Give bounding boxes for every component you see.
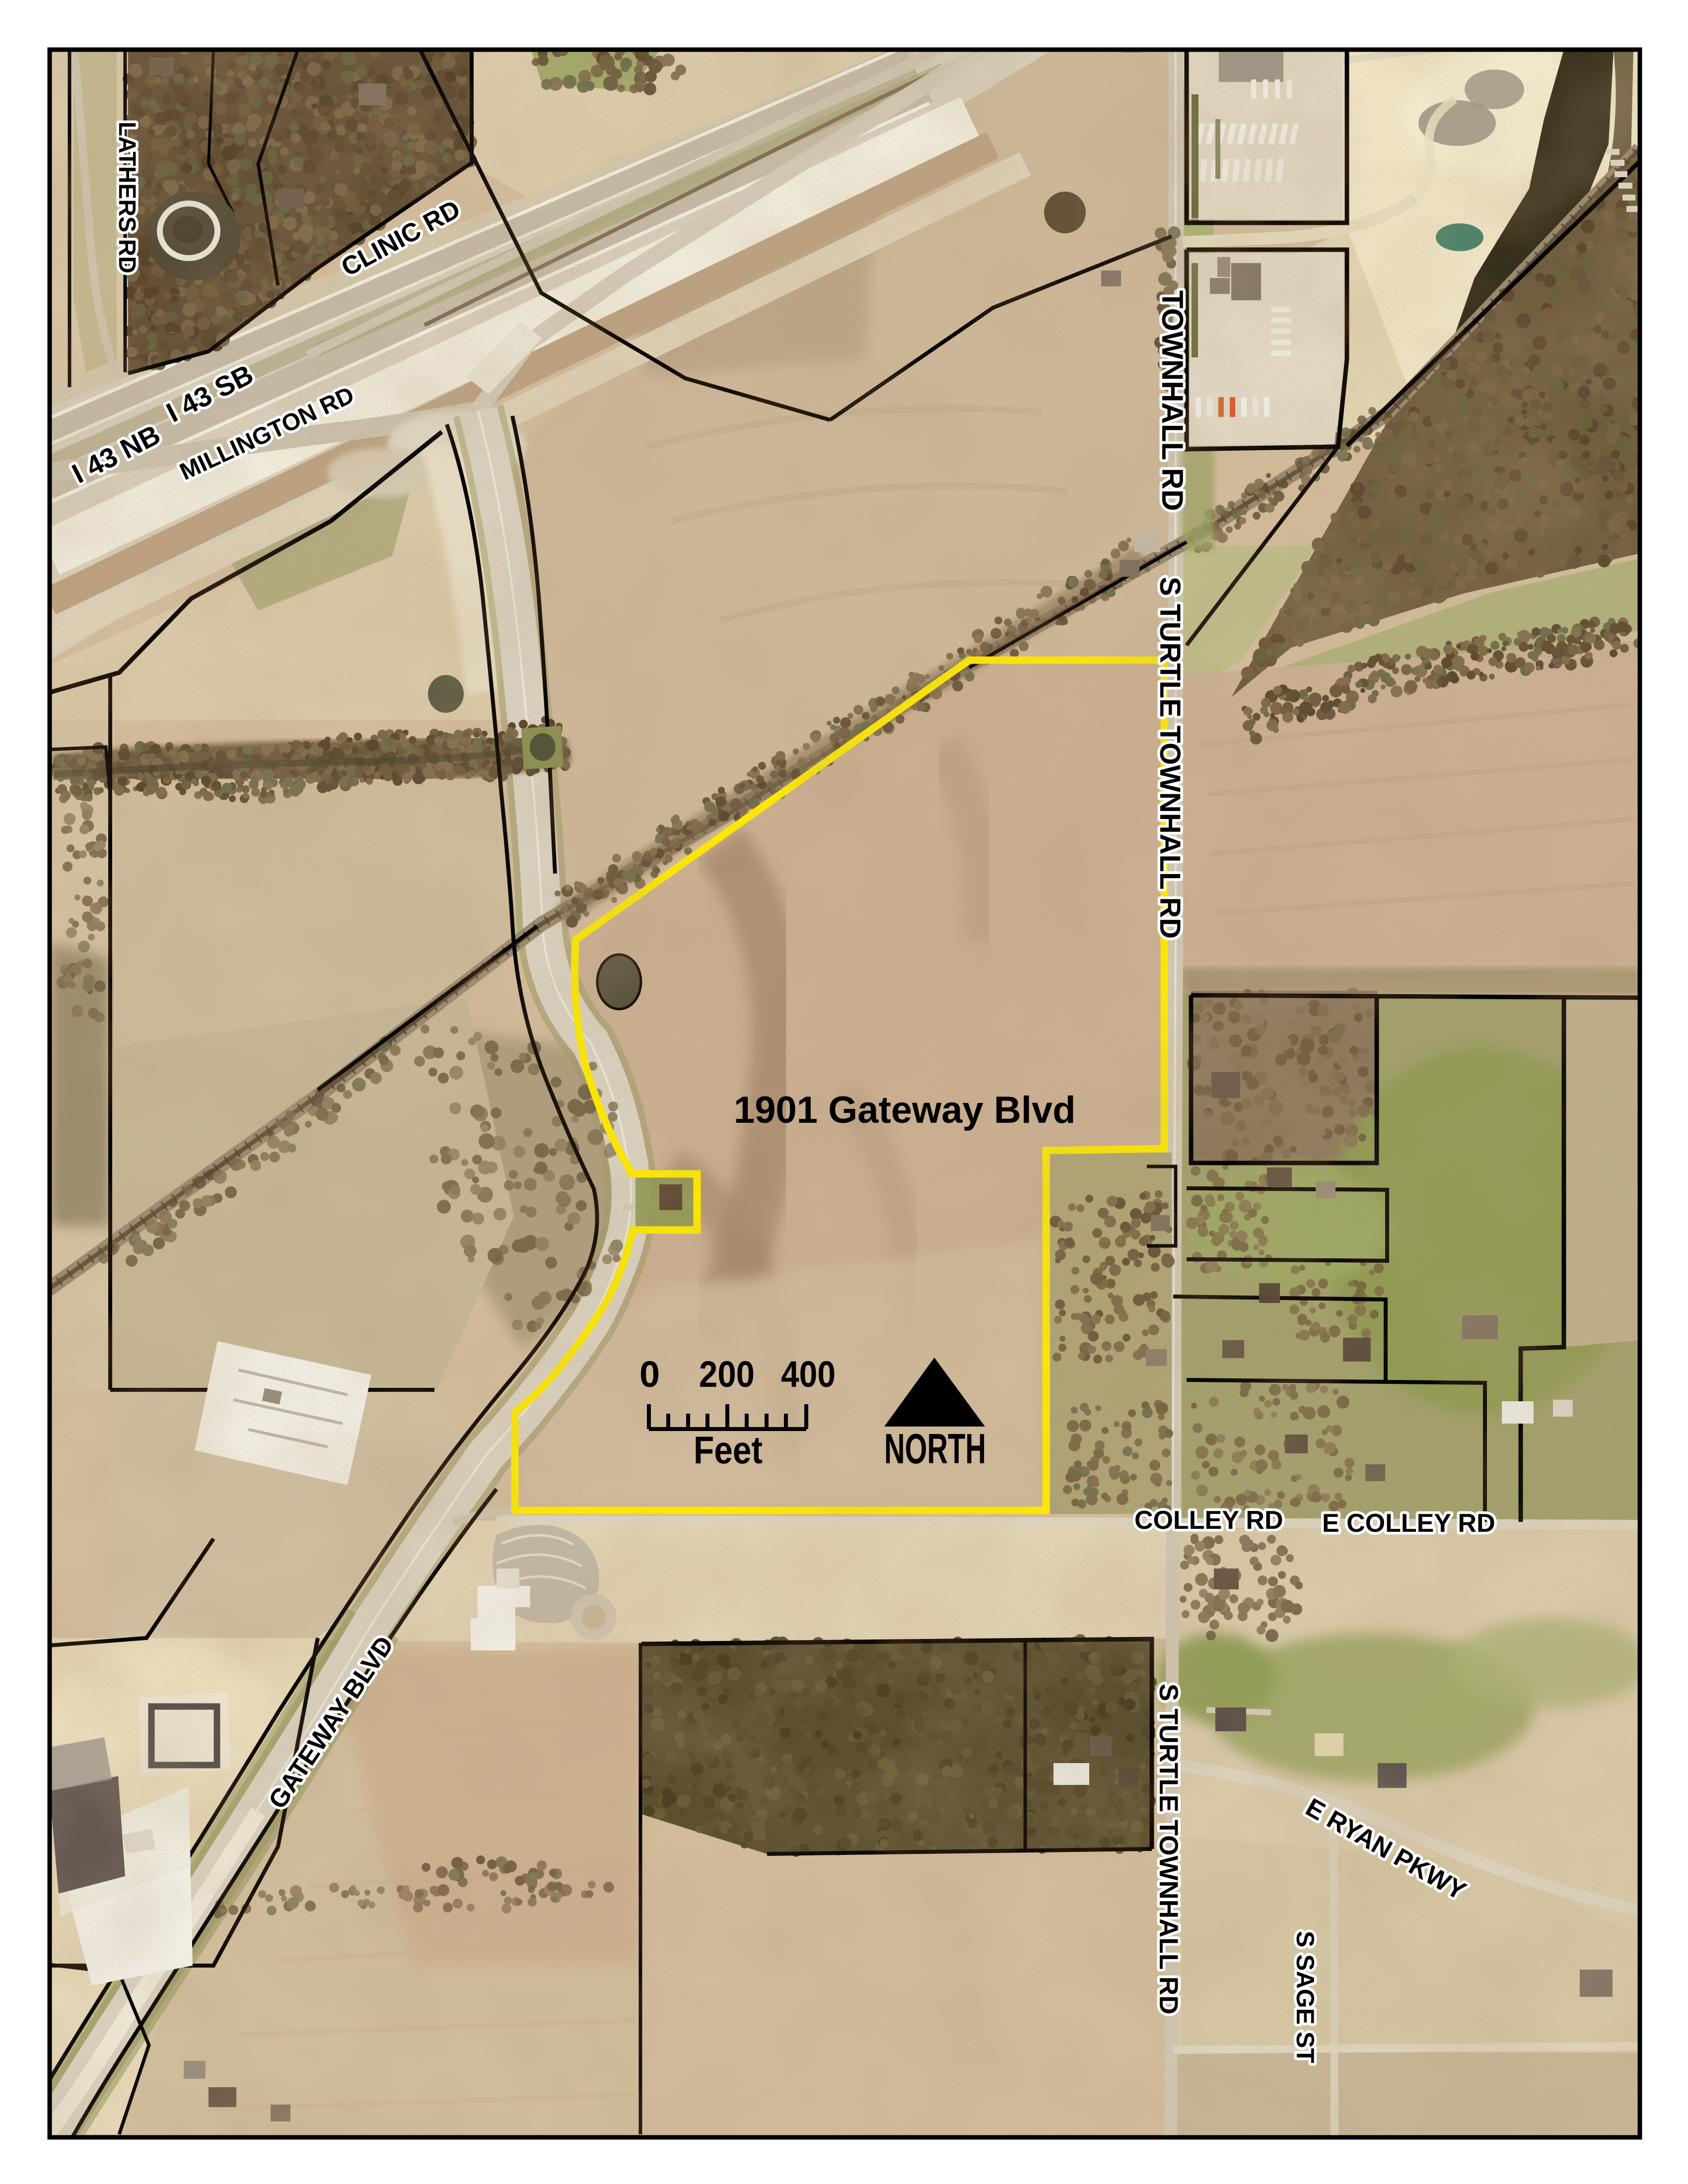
svg-text:400: 400: [781, 1354, 836, 1395]
svg-text:0: 0: [639, 1354, 660, 1395]
svg-text:S SAGE ST: S SAGE ST: [1291, 1931, 1319, 2063]
svg-text:TOWNHALL RD: TOWNHALL RD: [1156, 290, 1189, 511]
svg-text:S TURTLE TOWNHALL RD: S TURTLE TOWNHALL RD: [1154, 577, 1186, 939]
svg-text:E COLLEY RD: E COLLEY RD: [1322, 1509, 1495, 1538]
svg-text:LATHERS RD: LATHERS RD: [114, 122, 140, 273]
svg-text:Feet: Feet: [694, 1428, 763, 1472]
svg-text:1901 Gateway Blvd: 1901 Gateway Blvd: [734, 1089, 1076, 1131]
svg-text:200: 200: [699, 1354, 755, 1395]
svg-text:S TURTLE TOWNHALL RD: S TURTLE TOWNHALL RD: [1154, 1684, 1183, 2014]
svg-text:NORTH: NORTH: [884, 1426, 986, 1473]
svg-text:COLLEY RD: COLLEY RD: [1134, 1506, 1283, 1535]
